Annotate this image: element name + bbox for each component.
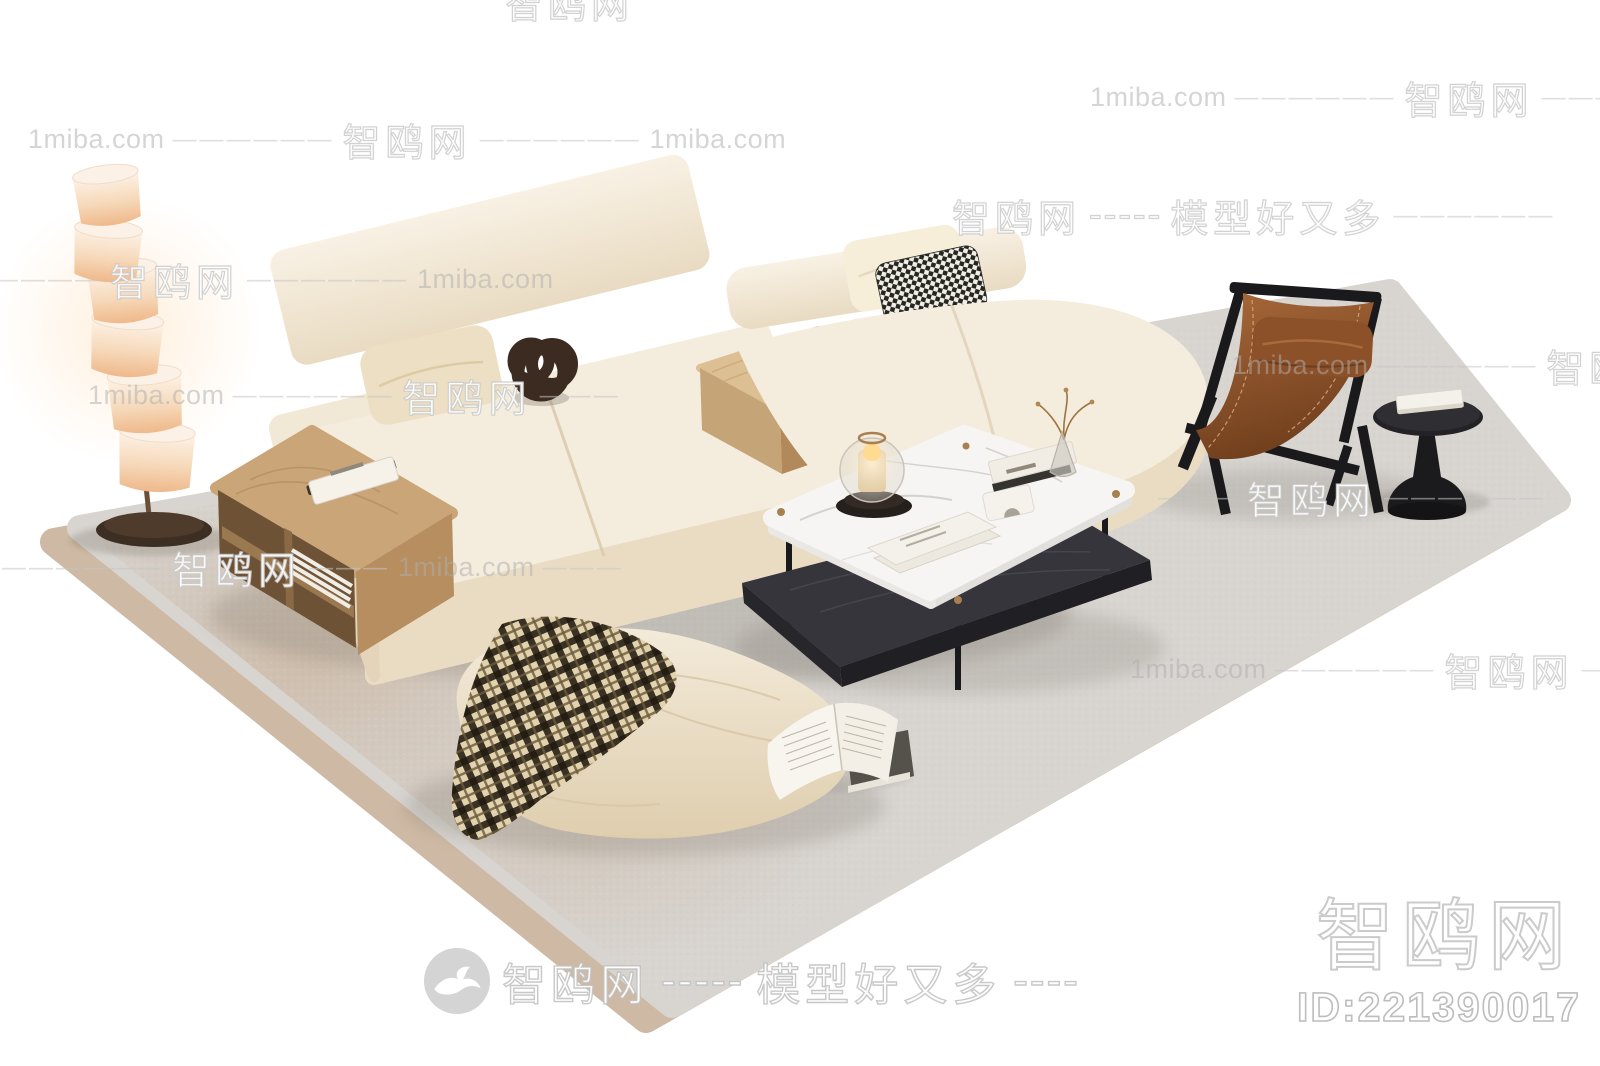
chair-leather-pillow bbox=[1251, 316, 1374, 378]
knot-ornament bbox=[513, 343, 572, 406]
seagull-icon bbox=[424, 948, 490, 1014]
site-badge: 智鸥网 ----- 模型好又多 ---- bbox=[424, 948, 1080, 1014]
brand-logotype: 智鸥网 bbox=[1316, 874, 1574, 986]
model-id: ID:221390017 bbox=[1297, 984, 1581, 1031]
badge-slogan-text: 模型好又多 bbox=[756, 949, 1001, 1013]
badge-brand-text: 智鸥网 bbox=[502, 949, 649, 1013]
product-image: 智鸥网 1miba.com —————— 智鸥网 —————— 1miba.co… bbox=[0, 0, 1600, 1066]
